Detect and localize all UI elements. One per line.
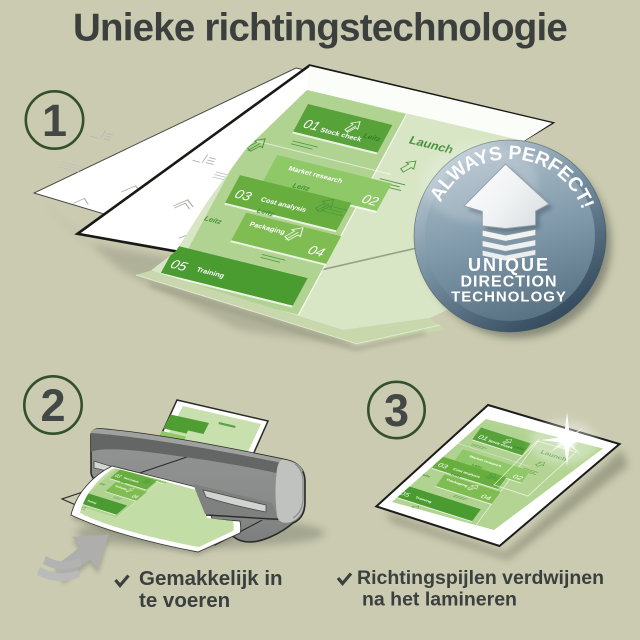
svg-text:na het lamineren: na het lamineren <box>362 589 517 611</box>
svg-text:Unieke richtingstechnologie: Unieke richtingstechnologie <box>73 7 567 50</box>
svg-text:Richtingspijlen verdwijnen: Richtingspijlen verdwijnen <box>357 567 604 589</box>
svg-text:3: 3 <box>384 385 409 436</box>
svg-text:1: 1 <box>42 95 67 146</box>
svg-text:TECHNOLOGY: TECHNOLOGY <box>451 289 567 306</box>
svg-text:2: 2 <box>40 380 65 431</box>
svg-text:te voeren: te voeren <box>139 589 230 612</box>
svg-text:Gemakkelijk in: Gemakkelijk in <box>139 567 283 590</box>
svg-text:UNIQUE: UNIQUE <box>468 255 550 275</box>
